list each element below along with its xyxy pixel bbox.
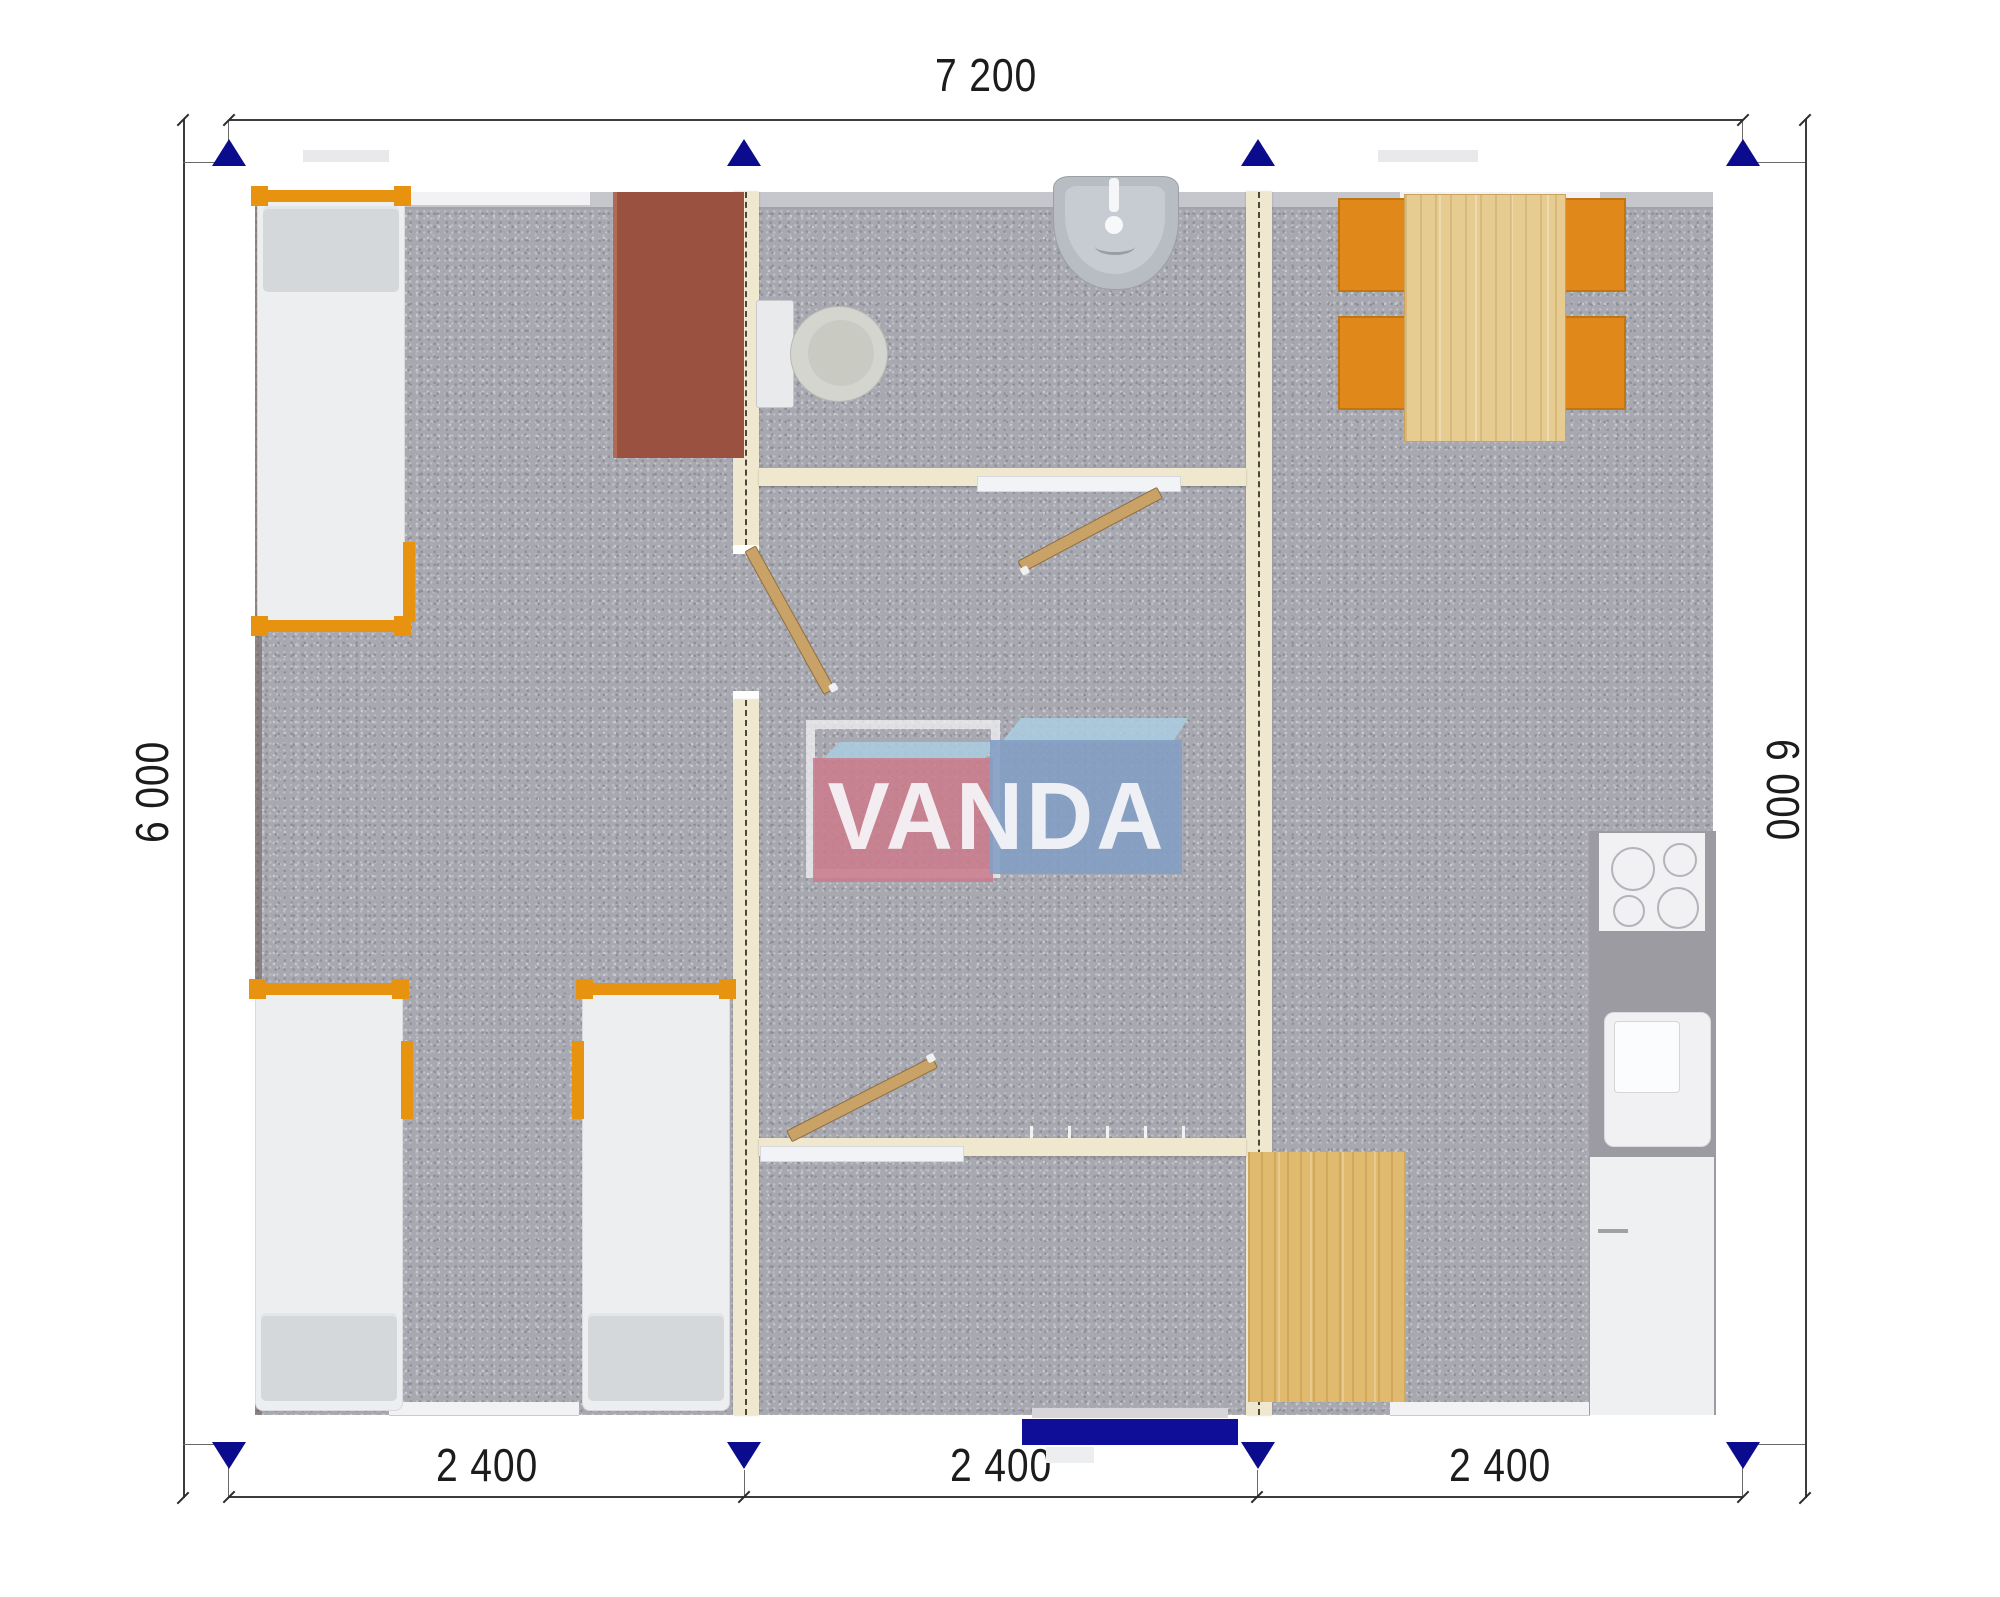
vanda-logo: VANDA bbox=[806, 714, 1188, 884]
exterior-window-frame bbox=[303, 150, 389, 162]
entrance-door bbox=[1032, 1408, 1228, 1418]
single-bed-3 bbox=[578, 983, 734, 1417]
dimension-line-left bbox=[183, 119, 185, 1498]
door-jamb bbox=[733, 691, 759, 700]
bathroom-sink bbox=[1053, 176, 1177, 292]
cooktop bbox=[1599, 833, 1705, 931]
single-bed-2 bbox=[251, 983, 407, 1417]
module-joint-arrow-icon bbox=[1726, 139, 1760, 166]
slide-rail-hatch bbox=[1182, 1126, 1185, 1138]
dining-table bbox=[1404, 194, 1566, 442]
logo-text: VANDA bbox=[816, 762, 1179, 872]
module-joint-arrow-icon bbox=[212, 139, 246, 166]
dimension-line-bottom bbox=[229, 1496, 1743, 1498]
partition-wall-left-lower bbox=[733, 700, 759, 1415]
window-sill-bottom-right bbox=[1390, 1402, 1590, 1416]
dimension-label-bottom-3: 2 400 bbox=[1415, 1438, 1585, 1492]
module-joint-arrow-icon bbox=[1241, 1442, 1275, 1469]
window-sill-top-left bbox=[385, 192, 590, 206]
slide-rail-hatch bbox=[1106, 1126, 1109, 1138]
module-joint-arrow-icon bbox=[212, 1442, 246, 1469]
faucet-icon bbox=[1109, 178, 1119, 212]
module-joint-arrow-icon bbox=[1726, 1442, 1760, 1469]
dimension-label-right: 6 000 bbox=[1756, 739, 1810, 841]
pillow bbox=[261, 1313, 397, 1401]
module-joint-arrow-icon bbox=[727, 1442, 761, 1469]
kitchen-cabinet bbox=[1590, 1157, 1714, 1415]
kitchen-sink bbox=[1604, 1012, 1711, 1147]
module-joint-arrow-icon bbox=[727, 139, 761, 166]
hall-door-threshold bbox=[760, 1146, 964, 1162]
entrance-recess bbox=[1022, 1419, 1238, 1445]
exterior-window-frame bbox=[1378, 150, 1478, 162]
pillow bbox=[588, 1313, 724, 1401]
toilet bbox=[756, 298, 888, 410]
desk bbox=[613, 192, 744, 458]
floor-plan-canvas: 7 200 6 000 6 000 2 400 2 400 2 400 bbox=[0, 0, 2000, 1597]
dimension-label-bottom-1: 2 400 bbox=[402, 1438, 572, 1492]
dimension-line-top bbox=[229, 119, 1743, 121]
wood-floor-mat bbox=[1248, 1152, 1406, 1402]
slide-rail-hatch bbox=[1144, 1126, 1147, 1138]
single-bed-1 bbox=[253, 190, 409, 632]
entrance-step bbox=[1046, 1447, 1094, 1463]
window-sill-bottom-left bbox=[389, 1402, 579, 1416]
slide-rail-hatch bbox=[1030, 1126, 1033, 1138]
module-joint-arrow-icon bbox=[1241, 139, 1275, 166]
dimension-label-top: 7 200 bbox=[901, 48, 1071, 102]
logo-blue-box-top bbox=[1002, 718, 1188, 742]
pillow bbox=[263, 206, 399, 292]
dimension-label-left: 6 000 bbox=[125, 741, 179, 843]
slide-rail-hatch bbox=[1068, 1126, 1071, 1138]
